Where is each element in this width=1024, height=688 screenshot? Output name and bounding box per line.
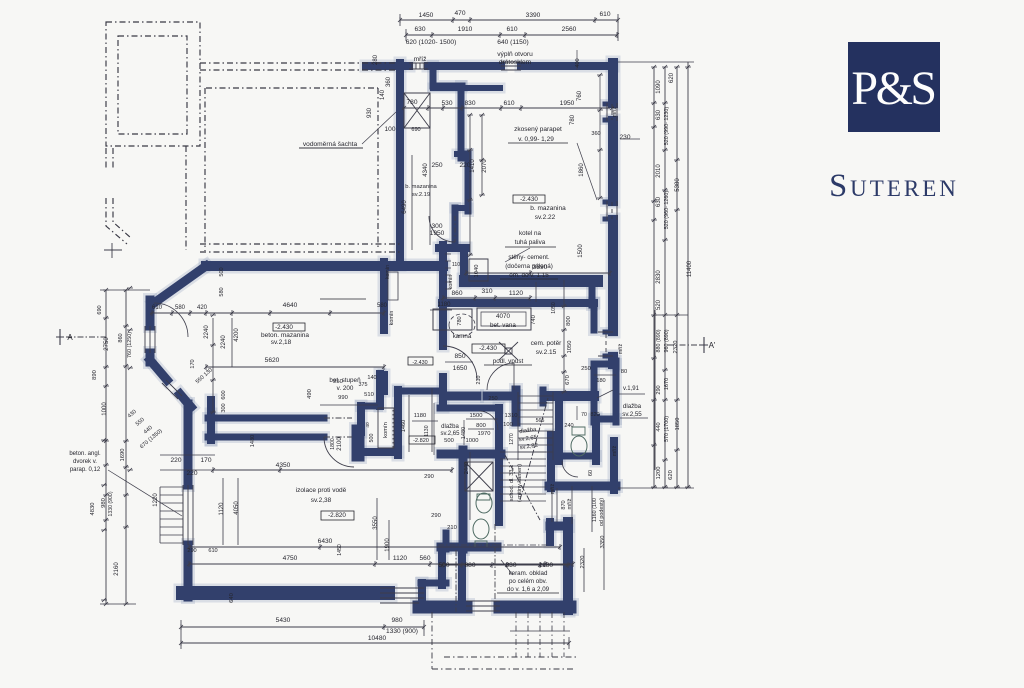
svg-text:990: 990 xyxy=(338,395,348,401)
svg-text:880 (890): 880 (890) xyxy=(656,329,662,352)
svg-text:komín: komín xyxy=(448,275,454,290)
svg-text:210: 210 xyxy=(447,525,457,531)
svg-text:-2.430: -2.430 xyxy=(520,196,538,203)
svg-text:560: 560 xyxy=(419,555,430,562)
svg-text:od podesty): od podesty) xyxy=(599,498,605,526)
svg-text:1270: 1270 xyxy=(509,433,515,445)
svg-text:640 (1150): 640 (1150) xyxy=(497,39,528,46)
svg-text:2560: 2560 xyxy=(562,26,577,33)
svg-text:v. 200: v. 200 xyxy=(337,385,354,392)
svg-text:565: 565 xyxy=(536,418,545,424)
svg-text:1900: 1900 xyxy=(385,538,391,552)
svg-text:óm. do v. 1.15: óm. do v. 1.15 xyxy=(509,272,549,279)
svg-text:izolace proti vodě: izolace proti vodě xyxy=(296,487,347,494)
svg-text:1480: 1480 xyxy=(250,435,256,447)
svg-text:570 (1700): 570 (1700) xyxy=(664,416,670,442)
svg-text:sv.2,55: sv.2,55 xyxy=(622,411,642,418)
svg-text:670: 670 xyxy=(565,375,571,385)
svg-text:2160: 2160 xyxy=(114,562,120,576)
svg-text:800: 800 xyxy=(566,316,572,326)
svg-text:490: 490 xyxy=(307,389,313,399)
svg-text:3390: 3390 xyxy=(526,12,541,19)
svg-text:1650: 1650 xyxy=(453,365,468,372)
svg-text:630: 630 xyxy=(414,26,425,33)
svg-text:5430: 5430 xyxy=(276,617,291,624)
svg-text:6490: 6490 xyxy=(402,200,408,214)
svg-text:4200: 4200 xyxy=(234,328,240,342)
svg-text:mříž: mříž xyxy=(550,483,556,494)
svg-text:5380: 5380 xyxy=(675,178,681,192)
svg-text:parap. 0,12: parap. 0,12 xyxy=(70,467,101,473)
svg-text:140: 140 xyxy=(367,375,376,381)
svg-text:dvorek v.: dvorek v. xyxy=(73,459,97,465)
svg-text:375: 375 xyxy=(359,382,368,388)
svg-text:1000: 1000 xyxy=(102,402,108,416)
svg-text:220: 220 xyxy=(186,470,197,477)
svg-text:1500: 1500 xyxy=(578,244,584,258)
svg-text:v. 0,99- 1,29: v. 0,99- 1,29 xyxy=(518,136,554,143)
svg-text:400: 400 xyxy=(575,58,581,67)
svg-text:P&S: P&S xyxy=(851,62,934,115)
svg-text:610: 610 xyxy=(503,100,514,107)
svg-text:290: 290 xyxy=(656,385,662,394)
svg-text:290: 290 xyxy=(424,474,434,480)
svg-text:11400: 11400 xyxy=(687,260,693,277)
svg-text:komín: komín xyxy=(385,265,391,279)
svg-text:80: 80 xyxy=(621,369,627,375)
svg-text:280: 280 xyxy=(373,54,379,65)
svg-text:bet. vana: bet. vana xyxy=(490,322,516,329)
svg-text:-2.430: -2.430 xyxy=(479,345,497,352)
svg-text:-2.820: -2.820 xyxy=(413,438,429,444)
svg-text:140: 140 xyxy=(380,89,386,100)
svg-text:1800: 1800 xyxy=(330,438,336,450)
svg-text:960 (890): 960 (890) xyxy=(664,329,670,352)
svg-text:2070: 2070 xyxy=(482,159,488,173)
svg-text:250: 250 xyxy=(431,162,442,169)
svg-text:komín: komín xyxy=(383,422,389,438)
svg-text:mříž: mříž xyxy=(567,498,573,509)
svg-text:1950: 1950 xyxy=(430,230,445,237)
svg-text:1180: 1180 xyxy=(438,302,452,308)
svg-text:2320: 2320 xyxy=(673,341,679,354)
svg-text:Suteren: Suteren xyxy=(829,168,959,204)
svg-text:mříž: mříž xyxy=(612,445,618,456)
svg-text:980: 980 xyxy=(101,498,107,508)
svg-text:860: 860 xyxy=(451,290,462,297)
svg-text:komín: komín xyxy=(389,311,395,326)
svg-text:240: 240 xyxy=(564,423,573,429)
svg-text:kamna: kamna xyxy=(453,333,472,340)
svg-text:1050: 1050 xyxy=(567,341,573,354)
svg-text:sv.2,38: sv.2,38 xyxy=(311,497,332,504)
svg-text:690: 690 xyxy=(97,305,103,314)
svg-text:mříž: mříž xyxy=(618,343,624,354)
svg-text:sv.2.15: sv.2.15 xyxy=(536,349,557,356)
svg-text:4830: 4830 xyxy=(90,503,96,516)
svg-text:3390: 3390 xyxy=(533,264,548,271)
svg-text:vodoměrná šachta: vodoměrná šachta xyxy=(303,141,358,148)
svg-text:520: 520 xyxy=(656,299,662,310)
svg-text:500: 500 xyxy=(219,267,225,276)
svg-text:250: 250 xyxy=(333,379,343,385)
svg-text:580: 580 xyxy=(175,305,186,311)
svg-text:cem. potěr: cem. potěr xyxy=(531,340,563,347)
svg-text:2440: 2440 xyxy=(464,462,470,474)
svg-text:180: 180 xyxy=(596,378,605,384)
svg-text:keram. obklad: keram. obklad xyxy=(509,570,548,577)
svg-text:4050: 4050 xyxy=(234,501,240,515)
svg-text:800: 800 xyxy=(476,423,486,429)
svg-text:( mitiny kámen): ( mitiny kámen) xyxy=(517,464,523,502)
svg-text:schod. dl. 33,1: schod. dl. 33,1 xyxy=(509,465,515,501)
svg-text:dlažba: dlažba xyxy=(623,403,642,410)
svg-text:1970: 1970 xyxy=(478,431,491,437)
svg-text:110: 110 xyxy=(452,262,460,268)
svg-text:3350: 3350 xyxy=(600,536,606,549)
svg-text:sv.2,65: sv.2,65 xyxy=(441,431,461,437)
svg-text:440: 440 xyxy=(656,422,662,431)
svg-text:2240: 2240 xyxy=(204,325,210,339)
svg-text:300: 300 xyxy=(221,403,227,412)
svg-text:4750: 4750 xyxy=(283,555,298,562)
svg-text:2010: 2010 xyxy=(656,164,662,178)
svg-text:beton. angl.: beton. angl. xyxy=(69,451,101,457)
svg-text:620: 620 xyxy=(668,470,674,480)
svg-text:b. mazanina: b. mazanina xyxy=(405,184,437,190)
svg-text:1120: 1120 xyxy=(509,290,524,297)
svg-text:870: 870 xyxy=(561,500,567,509)
svg-text:1180: 1180 xyxy=(539,562,554,569)
svg-text:880: 880 xyxy=(464,562,475,569)
svg-text:520 (990- 1230): 520 (990- 1230) xyxy=(664,107,670,146)
svg-text:250: 250 xyxy=(488,396,497,402)
svg-text:610: 610 xyxy=(506,26,517,33)
svg-text:A: A xyxy=(67,333,73,342)
svg-text:2100: 2100 xyxy=(337,437,343,451)
svg-text:1050: 1050 xyxy=(551,302,557,314)
svg-text:sv.2.19: sv.2.19 xyxy=(412,192,430,198)
svg-text:170: 170 xyxy=(190,359,196,368)
svg-text:620: 620 xyxy=(669,72,675,83)
svg-text:830: 830 xyxy=(464,100,475,107)
svg-text:b. mazanina: b. mazanina xyxy=(530,205,566,212)
svg-text:530: 530 xyxy=(441,100,452,107)
svg-text:sv.2.22: sv.2.22 xyxy=(535,214,556,221)
svg-text:250: 250 xyxy=(581,366,591,372)
svg-text:610: 610 xyxy=(599,11,610,18)
svg-text:930: 930 xyxy=(367,107,373,118)
svg-text:220: 220 xyxy=(170,457,181,464)
svg-text:1310: 1310 xyxy=(505,413,518,419)
svg-text:2240: 2240 xyxy=(221,335,227,349)
svg-text:610: 610 xyxy=(208,548,217,554)
svg-text:330: 330 xyxy=(505,562,516,569)
svg-text:sv.2,18: sv.2,18 xyxy=(271,339,292,346)
svg-text:6430: 6430 xyxy=(318,538,333,545)
svg-text:kotel na: kotel na xyxy=(519,230,542,237)
svg-text:1090: 1090 xyxy=(656,80,662,94)
svg-text:A': A' xyxy=(709,341,716,350)
svg-text:1670: 1670 xyxy=(664,378,670,390)
svg-text:10480: 10480 xyxy=(368,635,387,642)
svg-text:690: 690 xyxy=(411,127,420,133)
svg-text:-2.820: -2.820 xyxy=(328,512,346,519)
svg-text:170: 170 xyxy=(200,457,211,464)
svg-text:podl. vpust: podl. vpust xyxy=(493,358,524,365)
svg-text:1180: 1180 xyxy=(414,413,426,419)
svg-text:610: 610 xyxy=(152,305,163,311)
svg-text:1040: 1040 xyxy=(474,265,480,278)
svg-text:860: 860 xyxy=(118,333,124,342)
svg-text:40: 40 xyxy=(365,422,371,428)
svg-text:740: 740 xyxy=(531,315,537,325)
svg-text:stěny- cement.: stěny- cement. xyxy=(508,254,550,261)
svg-text:v.1,91: v.1,91 xyxy=(623,386,640,392)
svg-text:630: 630 xyxy=(656,109,662,120)
svg-text:820: 820 xyxy=(590,412,599,418)
svg-text:580: 580 xyxy=(219,287,225,296)
svg-text:500: 500 xyxy=(369,434,375,443)
svg-text:210: 210 xyxy=(476,376,482,385)
svg-text:3550: 3550 xyxy=(373,516,379,530)
svg-text:980: 980 xyxy=(391,617,402,624)
svg-text:4350: 4350 xyxy=(276,462,291,469)
svg-text:mříž: mříž xyxy=(414,56,427,63)
svg-text:600: 600 xyxy=(221,390,227,399)
svg-text:300: 300 xyxy=(431,223,442,230)
svg-text:580: 580 xyxy=(377,303,388,309)
svg-text:1460: 1460 xyxy=(401,420,407,432)
svg-text:1200: 1200 xyxy=(656,467,662,480)
svg-text:780: 780 xyxy=(406,99,417,106)
svg-text:290: 290 xyxy=(187,548,196,554)
svg-text:do v. 1,6 a 2,09: do v. 1,6 a 2,09 xyxy=(507,586,550,593)
svg-text:beton. mazanina: beton. mazanina xyxy=(261,332,309,339)
svg-text:1850: 1850 xyxy=(675,418,681,431)
svg-text:1500: 1500 xyxy=(470,413,483,419)
svg-text:1120: 1120 xyxy=(219,502,225,516)
svg-text:70: 70 xyxy=(581,412,587,418)
svg-text:4070: 4070 xyxy=(496,313,511,320)
svg-text:mříž: mříž xyxy=(612,106,618,117)
svg-text:-2.430: -2.430 xyxy=(275,324,293,331)
svg-text:780: 780 xyxy=(570,114,576,125)
svg-text:1690: 1690 xyxy=(120,449,126,462)
svg-text:2750: 2750 xyxy=(104,337,110,351)
svg-text:tuhá paliva: tuhá paliva xyxy=(515,239,546,246)
svg-text:1450: 1450 xyxy=(419,12,434,19)
svg-text:1410: 1410 xyxy=(470,159,476,173)
svg-text:500: 500 xyxy=(438,562,449,569)
svg-text:1950: 1950 xyxy=(560,100,575,107)
svg-text:1000: 1000 xyxy=(466,438,479,444)
svg-text:4340: 4340 xyxy=(423,163,429,177)
svg-text:100: 100 xyxy=(384,126,395,133)
svg-text:1160 (100: 1160 (100 xyxy=(592,498,598,522)
svg-text:1330 (900): 1330 (900) xyxy=(108,491,114,516)
svg-text:760: 760 xyxy=(577,90,583,101)
svg-text:1910: 1910 xyxy=(458,26,473,33)
svg-text:drátosklem: drátosklem xyxy=(499,59,532,66)
svg-text:780: 780 xyxy=(457,316,463,325)
svg-text:2830: 2830 xyxy=(656,270,662,284)
svg-text:890: 890 xyxy=(92,370,98,380)
svg-text:dlažba: dlažba xyxy=(441,424,459,430)
svg-text:360: 360 xyxy=(591,131,600,137)
svg-text:výplň otvoru: výplň otvoru xyxy=(497,51,533,58)
svg-text:1860: 1860 xyxy=(579,163,585,177)
svg-text:1130: 1130 xyxy=(424,425,430,436)
svg-text:230: 230 xyxy=(619,134,630,141)
svg-text:310: 310 xyxy=(481,288,492,295)
svg-text:zkosený parapet: zkosený parapet xyxy=(514,126,562,133)
svg-text:1330 (900): 1330 (900) xyxy=(386,628,418,635)
svg-text:360: 360 xyxy=(386,76,392,87)
svg-text:470: 470 xyxy=(454,10,465,17)
svg-text:100: 100 xyxy=(503,422,513,428)
svg-text:640: 640 xyxy=(229,593,235,603)
svg-text:1220: 1220 xyxy=(153,493,159,507)
svg-text:620 (1020- 1500): 620 (1020- 1500) xyxy=(406,39,457,46)
svg-text:420: 420 xyxy=(197,305,208,311)
svg-text:510: 510 xyxy=(364,392,374,398)
svg-text:60: 60 xyxy=(588,470,594,476)
svg-text:500: 500 xyxy=(444,438,454,444)
svg-text:4640: 4640 xyxy=(283,302,298,309)
svg-text:5620: 5620 xyxy=(265,357,280,364)
svg-text:290: 290 xyxy=(431,513,441,519)
svg-text:1120: 1120 xyxy=(393,555,408,562)
svg-text:630: 630 xyxy=(656,196,662,207)
svg-text:850: 850 xyxy=(454,353,465,360)
svg-text:po celém obv.: po celém obv. xyxy=(509,578,547,585)
svg-text:760 (1250): 760 (1250) xyxy=(127,332,133,358)
svg-text:520 (960- 1260): 520 (960- 1260) xyxy=(664,191,670,230)
svg-text:1450: 1450 xyxy=(337,544,343,556)
svg-text:2320: 2320 xyxy=(580,556,586,569)
